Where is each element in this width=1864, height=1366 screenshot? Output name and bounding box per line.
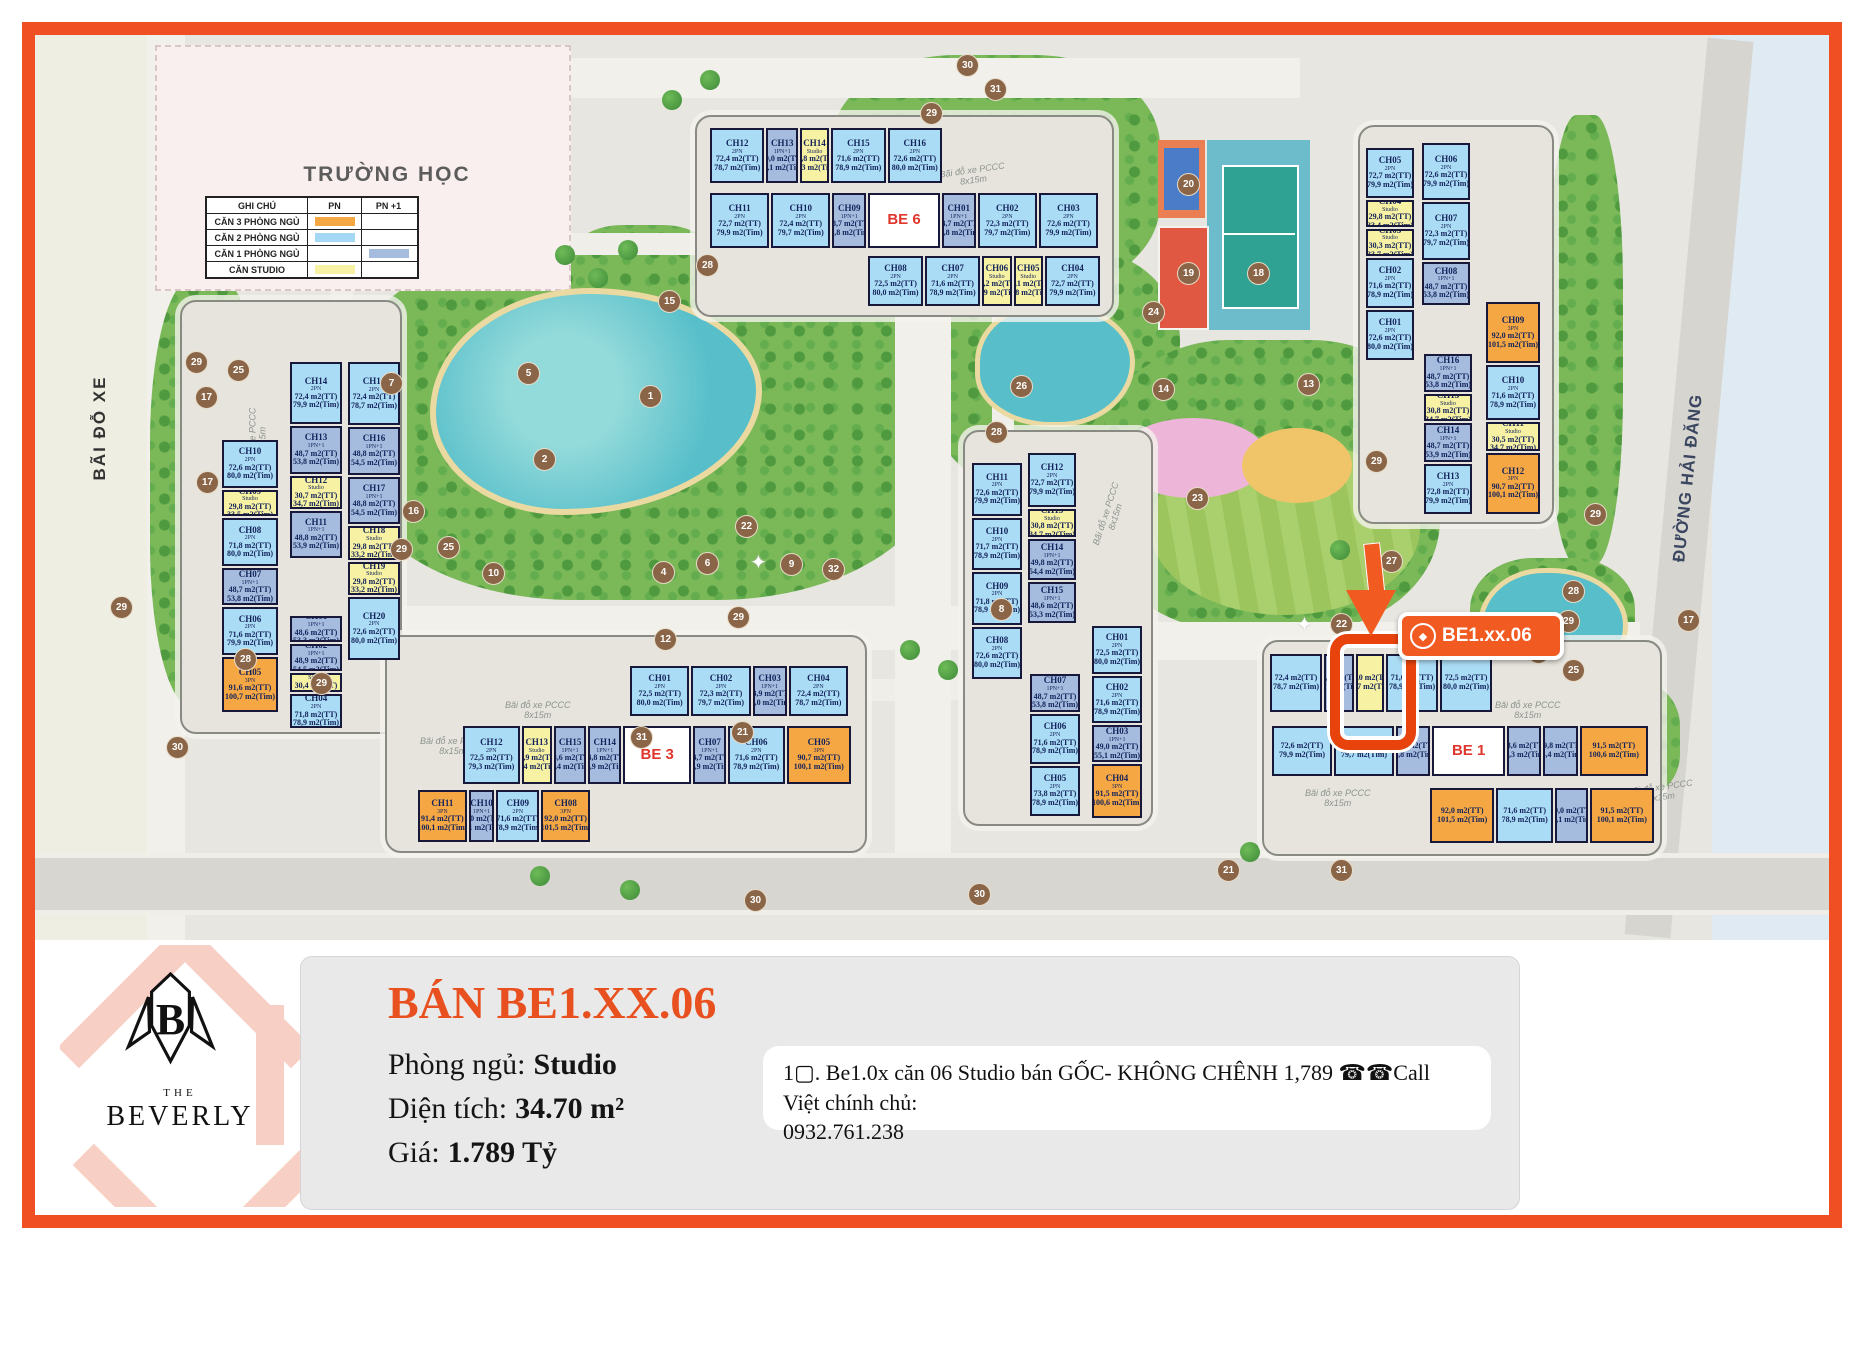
pond	[975, 302, 1135, 427]
building-units-row: CH122PN72,4 m2(TT)78,7 m2(Tim)CH131PN+14…	[710, 128, 942, 183]
map-marker: 6	[696, 552, 719, 575]
unit-cell: CH122PN72,4 m2(TT)78,7 m2(Tim)	[710, 128, 764, 183]
tree-icon	[620, 880, 640, 900]
building-units-row: CH113PN91,4 m2(TT)100,1 m2(Tim)CH101PN+1…	[418, 790, 590, 842]
pointer-arrow-head	[1346, 590, 1396, 636]
map-marker: 32	[822, 558, 845, 581]
listing-description: 1▢. Be1.0x căn 06 Studio bán GỐC- KHÔNG …	[763, 1046, 1491, 1130]
unit-cell: CH071PN+148,7 m2(TT)53,9 m2(Tim)	[693, 726, 726, 784]
listing-title: BÁN BE1.XX.06	[388, 976, 716, 1029]
unit-cell: CH032PN72,6 m2(TT)79,9 m2(Tim)	[1039, 193, 1098, 248]
logo-the-text: THE	[60, 1087, 300, 1099]
unit-cell: CH052PN73,8 m2(TT)78,9 m2(Tim)	[1030, 766, 1080, 816]
school-label: TRƯỜNG HỌC	[262, 163, 512, 187]
map-marker: 28	[985, 421, 1008, 444]
pccc-parking-label: Bãi đỗ xe PCCC 8x15m	[505, 700, 571, 721]
map-marker: 30	[956, 54, 979, 77]
unit-cell: CH043PN91,5 m2(TT)100,6 m2(Tim)	[1092, 764, 1142, 818]
detail-price: Giá:1.789 Tỷ	[388, 1136, 557, 1170]
unit-cell: CH081PN+148,7 m2(TT)53,8 m2(Tim)	[1422, 262, 1470, 305]
map-marker: 16	[402, 500, 425, 523]
map-marker: 29	[185, 351, 208, 374]
unit-cell: CH171PN+148,8 m2(TT)54,5 m2(Tim)	[348, 477, 400, 525]
unit-cell: CH141PN+148,8 m2(TT)53,9 m2(Tim)	[588, 726, 621, 784]
map-marker: 12	[654, 628, 677, 651]
unit-cell: CH082PN72,6 m2(TT)80,0 m2(Tim)	[972, 627, 1022, 680]
detail-label: Phòng ngủ:	[388, 1048, 526, 1081]
map-marker: 31	[630, 726, 653, 749]
unit-cell: 49,0 m2(TT)55,1 m2(Tim)	[1555, 788, 1588, 843]
detail-area: Diện tích:34.70 m²	[388, 1092, 624, 1126]
unit-cell: CH052PN72,7 m2(TT)79,9 m2(Tim)	[1366, 148, 1414, 198]
unit-cell: CH091PN+148,7 m2(TT)53,8 m2(Tim)	[832, 193, 866, 248]
building-units-row: 72,6 m2(TT)79,9 m2(Tim)72,3 m2(TT)79,7 m…	[1272, 726, 1648, 776]
unit-cell: CH102PN72,6 m2(TT)80,0 m2(Tim)	[222, 440, 278, 488]
map-marker: 27	[1380, 550, 1403, 573]
map-marker: 23	[1186, 487, 1209, 510]
unit-cell: CH022PN71,6 m2(TT)78,9 m2(Tim)	[1366, 258, 1414, 308]
map-marker: 13	[1297, 373, 1320, 396]
unit-cell: CH09Studio29,8 m2(TT)33,5 m2(Tim)	[222, 490, 278, 516]
beverly-emblem-icon: B	[118, 967, 223, 1085]
brand-badge-icon: ◆	[1410, 623, 1436, 649]
map-marker: 31	[984, 78, 1007, 101]
unit-cell: CH071PN+148,7 m2(TT)53,8 m2(Tim)	[222, 568, 278, 605]
unit-cell: 92,0 m2(TT)101,5 m2(Tim)	[1430, 788, 1494, 843]
map-marker: 29	[1584, 503, 1607, 526]
map-marker: 30	[968, 883, 991, 906]
building-units-col: CH112PN72,6 m2(TT)79,9 m2(Tim)CH102PN71,…	[972, 463, 1022, 679]
unit-cell: CH101PN+149,0 m2(TT)55,1 m2(Tim)	[469, 790, 494, 842]
unit-cell: CH072PN72,3 m2(TT)79,7 m2(Tim)	[1422, 202, 1470, 259]
map-marker: 25	[227, 359, 250, 382]
unit-cell: 91,5 m2(TT)100,1 m2(Tim)	[1590, 788, 1654, 843]
tennis-court-inner	[1222, 165, 1299, 309]
unit-cell: CH082PN71,8 m2(TT)80,0 m2(Tim)	[222, 518, 278, 566]
unit-cell: CH083PN92,0 m2(TT)101,5 m2(Tim)	[541, 790, 590, 842]
building-units-col: CH062PN72,6 m2(TT)79,9 m2(Tim)CH072PN72,…	[1422, 143, 1470, 305]
tree-icon	[900, 640, 920, 660]
unit-cell: CH022PN71,6 m2(TT)78,9 m2(Tim)	[1092, 676, 1142, 724]
unit-cell: 71,6 m2(TT)78,9 m2(Tim)	[1496, 788, 1553, 843]
unit-cell: CH042PN72,7 m2(TT)79,9 m2(Tim)	[1045, 256, 1100, 306]
building-units-col: CH142PN72,4 m2(TT)79,9 m2(Tim)CH131PN+14…	[290, 362, 342, 558]
unit-cell: CH151PN+148,6 m2(TT)53,3 m2(Tim)	[1028, 582, 1076, 623]
unit-cell: CH022PN72,3 m2(TT)79,7 m2(Tim)	[691, 666, 750, 716]
unit-cell: CH161PN+148,8 m2(TT)54,5 m2(Tim)	[348, 427, 400, 475]
map-marker: 7	[380, 372, 403, 395]
map-marker: 1	[639, 385, 662, 408]
unit-cell: 91,5 m2(TT)100,6 m2(Tim)	[1580, 726, 1648, 776]
map-marker: 22	[735, 515, 758, 538]
unit-cell: CH202PN72,6 m2(TT)80,0 m2(Tim)	[348, 597, 400, 660]
map-marker: 29	[110, 596, 133, 619]
unit-cell: CH012PN72,5 m2(TT)80,0 m2(Tim)	[630, 666, 689, 716]
map-marker: 21	[731, 721, 754, 744]
pavement-star: ✦	[1296, 612, 1313, 637]
unit-cell: CH141PN+149,8 m2(TT)54,4 m2(Tim)	[1028, 539, 1076, 580]
map-marker: 4	[652, 561, 675, 584]
building-units-row: 92,0 m2(TT)101,5 m2(Tim)71,6 m2(TT)78,9 …	[1430, 788, 1654, 843]
map-marker: 29	[310, 672, 333, 695]
building-label: BE 1	[1432, 726, 1504, 776]
unit-cell: CH011PN+148,7 m2(TT)53,8 m2(Tim)	[942, 193, 976, 248]
boulevard	[35, 853, 1829, 915]
building-units-row: CH122PN72,5 m2(TT)79,3 m2(Tim)CH13Studio…	[463, 726, 851, 784]
unit-cell: CH053PN90,7 m2(TT)100,1 m2(Tim)	[787, 726, 851, 784]
legend-header: PN	[307, 198, 361, 213]
legend-row: CĂN 2 PHÒNG NGỦ	[207, 229, 417, 245]
unit-cell: CH102PN71,6 m2(TT)78,9 m2(Tim)	[1486, 365, 1540, 419]
legend-row: CĂN STUDIO	[207, 261, 417, 277]
parking-label: BÃI ĐỖ XE	[90, 363, 110, 493]
unit-cell: CH022PN72,3 m2(TT)79,7 m2(Tim)	[978, 193, 1037, 248]
logo-name-text: BEVERLY	[60, 1101, 300, 1133]
tree-icon	[555, 245, 575, 265]
map-marker: 9	[780, 553, 803, 576]
building-units-row: CH082PN72,5 m2(TT)80,0 m2(Tim)CH072PN71,…	[868, 256, 1100, 306]
tree-icon	[938, 660, 958, 680]
legend-header: GHI CHÚ	[207, 198, 307, 213]
map-marker: 30	[166, 736, 189, 759]
tennis-net-line	[1222, 233, 1295, 235]
detail-bedrooms: Phòng ngủ:Studio	[388, 1048, 617, 1082]
legend-header: PN +1	[361, 198, 415, 213]
map-marker: 2	[533, 448, 556, 471]
map-marker: 25	[437, 536, 460, 559]
tree-icon	[1330, 540, 1350, 560]
map-marker: 29	[390, 538, 413, 561]
unit-cell: CH151PN+148,6 m2(TT)53,4 m2(Tim)	[554, 726, 587, 784]
unit-cell: CH161PN+148,7 m2(TT)53,8 m2(Tim)	[1424, 354, 1472, 392]
map-marker: 28	[234, 648, 257, 671]
playground-sand	[1242, 428, 1352, 503]
tree-icon	[662, 90, 682, 110]
map-marker: 18	[1247, 262, 1270, 285]
building-units-col: CH093PN92,0 m2(TT)101,5 m2(Tim)CH102PN71…	[1486, 302, 1540, 514]
map-marker: 10	[482, 562, 505, 585]
tree-icon	[618, 240, 638, 260]
map-marker: 15	[658, 290, 681, 313]
unit-cell: CH162PN72,6 m2(TT)80,0 m2(Tim)	[888, 128, 942, 183]
unit-cell: CH11Studio30,5 m2(TT)34,7 m2(Tim)	[1486, 422, 1540, 451]
unit-cell: 48,6 m2(TT)55,3 m2(Tim)	[1507, 726, 1541, 776]
map-marker: 28	[1562, 580, 1585, 603]
unit-cell: CH13Studio29,9 m2(TT)33,4 m2(Tim)	[522, 726, 552, 784]
unit-cell: CH011PN+148,6 m2(TT)53,3 m2(Tim)	[290, 616, 342, 642]
unit-cell: 49,8 m2(TT)54,4 m2(Tim)	[1543, 726, 1577, 776]
unit-cell: CH021PN+148,9 m2(TT)54,5 m2(Tim)	[290, 644, 342, 670]
unit-cell: CH06Studio30,2 m2(TT)33,9 m2(Tim)	[982, 256, 1011, 306]
pavement-star: ✦	[750, 550, 767, 575]
unit-cell: CH042PN71,8 m2(TT)78,9 m2(Tim)	[290, 694, 342, 728]
map-marker: 20	[1177, 173, 1200, 196]
unit-cell: CH042PN72,4 m2(TT)78,7 m2(Tim)	[789, 666, 848, 716]
unit-cell: CH072PN71,6 m2(TT)78,9 m2(Tim)	[925, 256, 980, 306]
road	[895, 235, 951, 865]
map-marker: 5	[517, 362, 540, 385]
unit-cell: CH112PN72,7 m2(TT)79,9 m2(Tim)	[710, 193, 769, 248]
map-marker: 17	[196, 471, 219, 494]
map-marker: 8	[990, 598, 1013, 621]
callout-label: BE1.xx.06	[1442, 625, 1532, 647]
unit-cell: CH092PN71,6 m2(TT)78,9 m2(Tim)	[496, 790, 539, 842]
unit-cell: 72,5 m2(TT)80,0 m2(Tim)	[1440, 654, 1492, 712]
unit-cell: CH111PN+148,8 m2(TT)53,9 m2(Tim)	[290, 511, 342, 558]
map-marker: 14	[1152, 378, 1175, 401]
unit-cell: CH15Studio30,8 m2(TT)34,7 m2(Tim)	[1424, 394, 1472, 421]
brand-logo-card: B THE BEVERLY	[60, 945, 300, 1207]
pccc-parking-label: Bãi đỗ xe PCCC 8x15m	[1495, 700, 1561, 721]
unit-cell: CH071PN+148,7 m2(TT)53,8 m2(Tim)	[1030, 674, 1080, 712]
unit-cell: CH122PN72,7 m2(TT)79,9 m2(Tim)	[1028, 453, 1076, 507]
detail-label: Diện tích:	[388, 1092, 507, 1125]
building-units-col: CH012PN72,5 m2(TT)80,0 m2(Tim)CH022PN71,…	[1092, 626, 1142, 818]
building-units-col: CH152PN72,4 m2(TT)78,7 m2(Tim)CH161PN+14…	[348, 362, 400, 660]
legend-swatch	[315, 233, 355, 242]
unit-cell: CH062PN71,6 m2(TT)78,9 m2(Tim)	[1030, 714, 1080, 764]
map-marker: 17	[1677, 609, 1700, 632]
building-units-row: CH112PN72,7 m2(TT)79,9 m2(Tim)CH102PN72,…	[710, 193, 1098, 248]
detail-value: 34.70 m²	[515, 1092, 624, 1125]
unit-cell: CH19Studio29,8 m2(TT)33,2 m2(Tim)	[348, 562, 400, 595]
map-marker: 21	[1217, 859, 1240, 882]
legend-row: CĂN 1 PHÒNG NGỦ	[207, 245, 417, 261]
unit-cell: CH082PN72,5 m2(TT)80,0 m2(Tim)	[868, 256, 923, 306]
unit-cell: CH142PN72,4 m2(TT)79,9 m2(Tim)	[290, 362, 342, 424]
unit-cell: CH122PN72,5 m2(TT)79,3 m2(Tim)	[463, 726, 520, 784]
unit-cell: CH012PN72,6 m2(TT)80,0 m2(Tim)	[1366, 310, 1414, 360]
unit-cell: CH131PN+149,0 m2(TT)55,1 m2(Tim)	[766, 128, 798, 183]
unit-cell: CH012PN72,5 m2(TT)80,0 m2(Tim)	[1092, 626, 1142, 674]
building-units-row: CH012PN72,5 m2(TT)80,0 m2(Tim)CH022PN72,…	[630, 666, 848, 716]
tree-icon	[1240, 842, 1260, 862]
unit-cell: CH12Studio30,7 m2(TT)34,7 m2(Tim)	[290, 476, 342, 509]
unit-cell: CH113PN91,4 m2(TT)100,1 m2(Tim)	[418, 790, 467, 842]
unit-cell: CH093PN92,0 m2(TT)101,5 m2(Tim)	[1486, 302, 1540, 363]
legend-swatch	[315, 265, 355, 274]
building-label: BE 6	[868, 193, 939, 248]
unit-cell: CH141PN+148,7 m2(TT)53,9 m2(Tim)	[1424, 423, 1472, 461]
unit-cell: CH13Studio30,8 m2(TT)34,7 m2(Tim)	[1028, 509, 1076, 538]
unit-cell: CH062PN72,6 m2(TT)79,9 m2(Tim)	[1422, 143, 1470, 200]
map-marker: 24	[1142, 301, 1165, 324]
building-units-col: CH052PN72,7 m2(TT)79,9 m2(Tim)CH04Studio…	[1366, 148, 1414, 360]
svg-text:B: B	[156, 995, 185, 1044]
unit-cell: CH102PN72,4 m2(TT)79,7 m2(Tim)	[771, 193, 830, 248]
map-marker: 28	[696, 254, 719, 277]
park-green	[1548, 115, 1623, 565]
legend-row: CĂN 3 PHÒNG NGỦ	[207, 213, 417, 229]
map-marker: 29	[1365, 450, 1388, 473]
unit-cell: 72,4 m2(TT)78,7 m2(Tim)	[1270, 654, 1322, 712]
tree-icon	[530, 866, 550, 886]
detail-label: Giá:	[388, 1136, 440, 1169]
unit-cell: CH102PN71,7 m2(TT)78,9 m2(Tim)	[972, 518, 1022, 571]
unit-cell: CH031PN+148,9 m2(TT)55,0 m2(Tim)	[753, 666, 787, 716]
unit-cell: 72,6 m2(TT)79,9 m2(Tim)	[1272, 726, 1332, 776]
building-units-col: CH161PN+148,7 m2(TT)53,8 m2(Tim)CH15Stud…	[1424, 354, 1472, 514]
map-marker: 17	[195, 386, 218, 409]
detail-value: Studio	[534, 1048, 617, 1081]
unit-callout: ◆ BE1.xx.06	[1398, 612, 1564, 660]
map-marker: 26	[1010, 375, 1033, 398]
map-marker: 31	[1330, 859, 1353, 882]
detail-value: 1.789 Tỷ	[448, 1136, 557, 1169]
unit-cell: CH123PN90,7 m2(TT)100,1 m2(Tim)	[1486, 453, 1540, 514]
legend-swatch	[315, 217, 355, 226]
map-marker: 25	[1562, 659, 1585, 682]
building-units-col: CH102PN72,6 m2(TT)80,0 m2(Tim)CH09Studio…	[222, 440, 278, 712]
tree-icon	[588, 268, 608, 288]
unit-cell: CH152PN71,6 m2(TT)78,9 m2(Tim)	[831, 128, 885, 183]
unit-cell: CH112PN72,6 m2(TT)79,9 m2(Tim)	[972, 463, 1022, 516]
unit-cell: CH132PN72,8 m2(TT)79,9 m2(Tim)	[1424, 464, 1472, 514]
tree-icon	[700, 70, 720, 90]
building-units-col: CH071PN+148,7 m2(TT)53,8 m2(Tim)CH062PN7…	[1030, 674, 1080, 816]
building-units-col: CH122PN72,7 m2(TT)79,9 m2(Tim)CH13Studio…	[1028, 453, 1076, 623]
unit-cell: CH031PN+149,0 m2(TT)55,1 m2(Tim)	[1092, 725, 1142, 761]
map-marker: 29	[920, 102, 943, 125]
map-marker: 19	[1177, 262, 1200, 285]
unit-cell: CH03Studio30,3 m2(TT)33,7 m2(Tim)	[1366, 229, 1414, 256]
map-marker: 30	[744, 889, 767, 912]
unit-cell: CH05Studio30,1 m2(TT)33,8 m2(Tim)	[1014, 256, 1043, 306]
pccc-parking-label: Bãi đỗ xe PCCC 8x15m	[1305, 788, 1371, 809]
map-legend: GHI CHÚPNPN +1CĂN 3 PHÒNG NGỦCĂN 2 PHÒNG…	[205, 196, 419, 279]
unit-cell: CH04Studio29,8 m2(TT)33,4 m2(Tim)	[1366, 200, 1414, 227]
unit-cell: CH14Studio29,8 m2(TT)33,3 m2(Tim)	[800, 128, 829, 183]
unit-cell: CH131PN+148,7 m2(TT)53,8 m2(Tim)	[290, 426, 342, 473]
map-marker: 29	[727, 606, 750, 629]
legend-swatch	[369, 249, 409, 258]
